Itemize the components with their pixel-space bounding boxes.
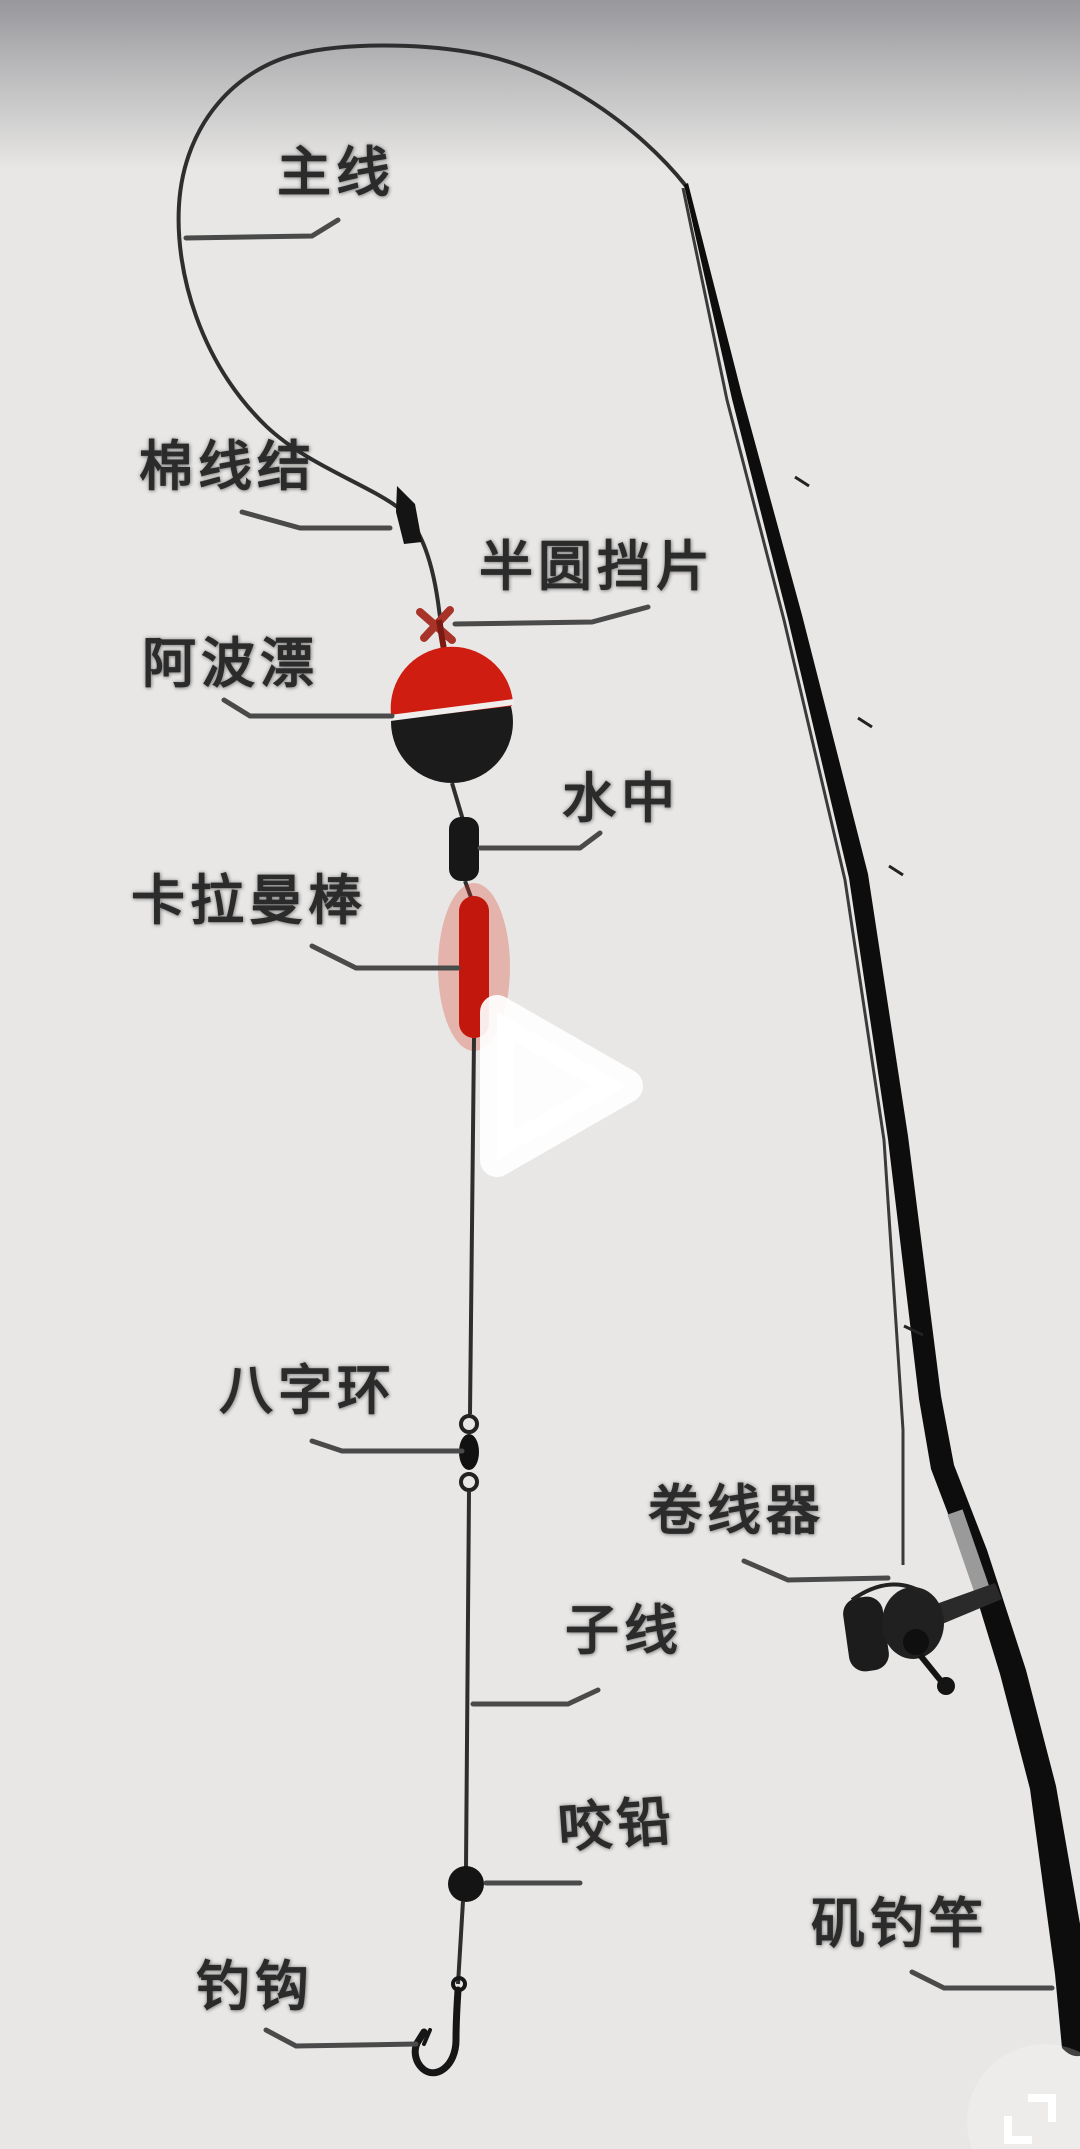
label-reel: 卷线器 (648, 1482, 825, 1541)
label-karaman-stick: 卡拉曼棒 (131, 872, 367, 931)
label-semicircle-stopper: 半圆挡片 (479, 538, 715, 597)
apollo-float (390, 647, 514, 783)
label-figure8-swivel: 八字环 (219, 1362, 396, 1421)
label-sub-line: 子线 (565, 1602, 683, 1661)
label-main-line: 主线 (277, 144, 395, 203)
leader-cotton-knot (242, 512, 390, 528)
leader-semicircle-stopper (455, 607, 648, 624)
label-rock-fishing-rod: 矶钓竿 (811, 1895, 988, 1954)
label-cotton-knot: 棉线结 (139, 438, 316, 497)
leader-rock-rod (912, 1972, 1052, 1988)
leader-main-line (186, 220, 338, 238)
label-bite-lead: 咬铅 (556, 1792, 678, 1859)
water-sinker-bead (449, 817, 479, 881)
label-apollo-float: 阿波漂 (142, 635, 319, 694)
line-lead-to-hook (458, 1901, 463, 1984)
leader-sub-line (473, 1690, 598, 1704)
leader-figure8-swivel (312, 1441, 462, 1451)
play-button[interactable] (470, 985, 670, 1185)
leader-fish-hook (266, 2030, 416, 2046)
leader-reel (744, 1561, 888, 1580)
leader-apollo-float (224, 700, 392, 716)
semicircle-stopper-mark (420, 610, 452, 640)
line-float-to-sinker (452, 783, 463, 820)
leader-water-sinker (480, 833, 600, 848)
fullscreen-button[interactable] (965, 2050, 1080, 2149)
sub-line-path (466, 1491, 469, 1868)
label-fish-hook: 钓钩 (196, 1958, 314, 2017)
video-frame-fishing-rig-diagram: 主线 棉线结 半圆挡片 阿波漂 水中 卡拉曼棒 八字环 卷线器 子线 咬铅 矶钓… (0, 0, 1080, 2149)
reel-illustration (841, 1583, 1002, 1695)
line-along-rod (683, 188, 903, 1565)
cotton-knot-mark (396, 486, 422, 544)
leader-karaman-stick (312, 946, 458, 968)
label-water-sinker: 水中 (562, 770, 680, 829)
fish-hook (415, 1978, 465, 2073)
bite-lead-bead (448, 1866, 484, 1902)
